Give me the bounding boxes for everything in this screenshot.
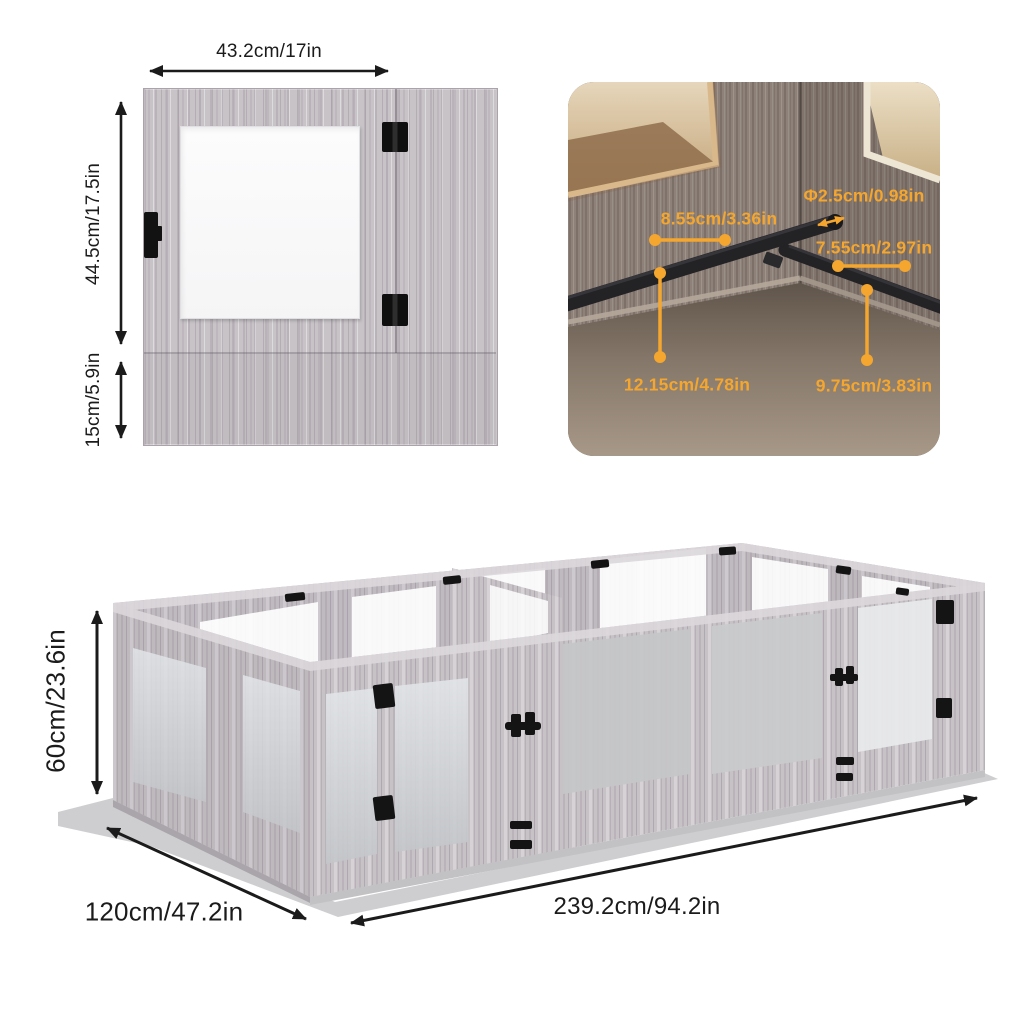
- pen-left-window-glass: [243, 675, 300, 833]
- assembled-depth-label: 120cm/47.2in: [85, 897, 244, 928]
- pen-left-window-glass: [133, 648, 206, 802]
- connector-clip-icon: [719, 546, 737, 555]
- latch-icon: [846, 666, 854, 684]
- slot-icon: [836, 757, 854, 765]
- hinge-icon: [373, 795, 396, 821]
- product-dimension-diagram: 43.2cm/17in 44.5cm/17.5in 15cm/5.9in: [0, 0, 1020, 1020]
- slot-icon: [836, 773, 853, 781]
- assembled-height-label: 60cm/23.6in: [41, 629, 72, 773]
- assembled-pen-illustration: [58, 543, 998, 917]
- hinge-icon: [373, 683, 396, 709]
- latch-icon: [835, 668, 843, 686]
- latch-icon: [525, 712, 535, 735]
- hinge-icon: [936, 600, 954, 624]
- scene-graphics: [0, 0, 1020, 1020]
- panel-dimension-arrows: [121, 71, 388, 438]
- slot-icon: [510, 821, 532, 829]
- slot-icon: [510, 840, 532, 849]
- latch-icon: [505, 722, 541, 730]
- assembled-length-label: 239.2cm/94.2in: [554, 893, 721, 921]
- latch-icon: [511, 714, 521, 737]
- hinge-icon: [936, 698, 952, 718]
